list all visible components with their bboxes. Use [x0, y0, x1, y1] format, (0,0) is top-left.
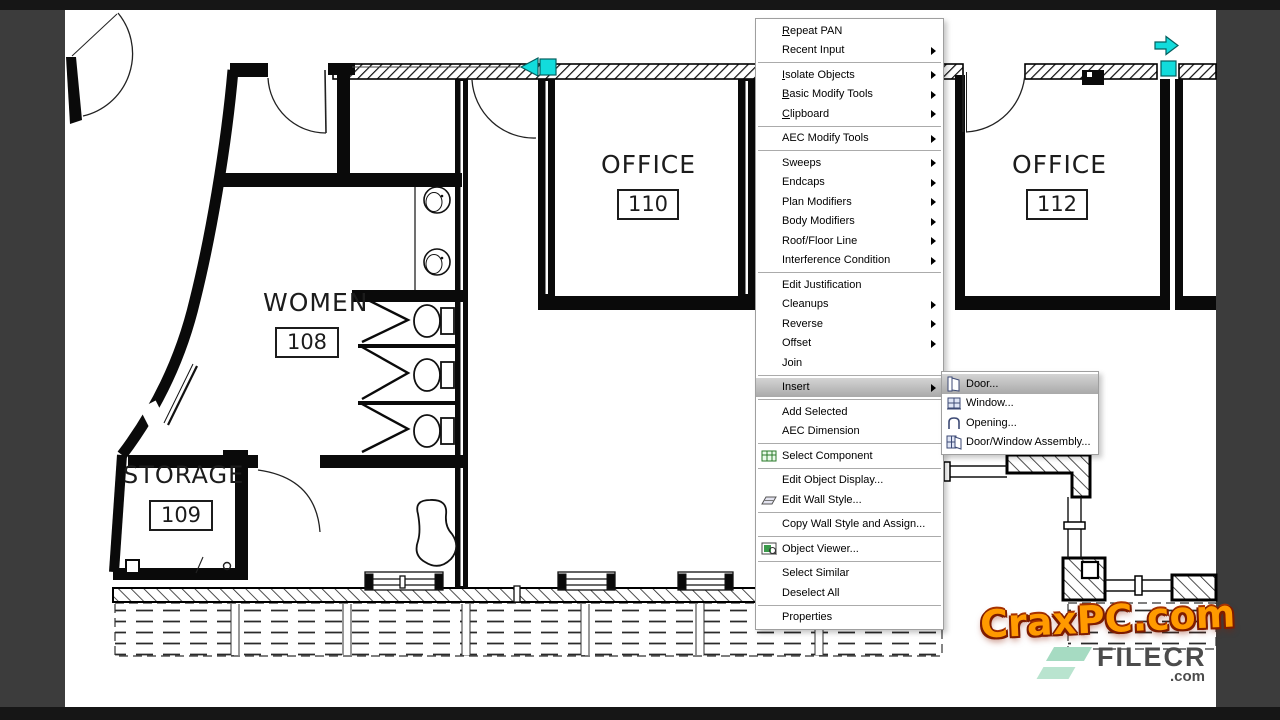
submenu-arrow-icon [931, 91, 936, 99]
menu-item-edit-justification[interactable]: Edit Justification [756, 275, 943, 295]
submenu-item-window[interactable]: Window... [942, 394, 1098, 414]
filecr-logo-bar [1046, 647, 1092, 661]
menu-item-copy-wall-style-and-assign[interactable]: Copy Wall Style and Assign... [756, 515, 943, 535]
context-menu: Repeat PAN Recent Input Isolate Objects … [755, 18, 944, 630]
menu-item-recent-input[interactable]: Recent Input [756, 41, 943, 61]
submenu-arrow-icon [931, 237, 936, 245]
menu-separator [758, 272, 941, 273]
room-number-108: 108 [275, 327, 339, 358]
menu-separator [758, 150, 941, 151]
door-icon [946, 376, 962, 392]
sink [424, 187, 450, 213]
object-viewer-icon [761, 541, 777, 557]
menu-item-sweeps[interactable]: Sweeps [756, 153, 943, 173]
submenu-arrow-icon [931, 301, 936, 309]
submenu-arrow-icon [931, 340, 936, 348]
door-window-assembly-icon [946, 434, 962, 450]
menu-item-select-component[interactable]: Select Component [756, 446, 943, 466]
menu-separator [758, 536, 941, 537]
menu-separator [758, 399, 941, 400]
room-number-109: 109 [149, 500, 213, 531]
submenu-arrow-icon [931, 384, 936, 392]
opening-icon [946, 415, 962, 431]
submenu-item-door-window-assembly[interactable]: Door/Window Assembly... [942, 433, 1098, 453]
menu-item-interference-condition[interactable]: Interference Condition [756, 251, 943, 271]
submenu-arrow-icon [931, 179, 936, 187]
menu-separator [758, 605, 941, 606]
menu-separator [758, 375, 941, 376]
menu-item-add-selected[interactable]: Add Selected [756, 402, 943, 422]
menu-item-isolate-objects[interactable]: Isolate Objects [756, 65, 943, 85]
menu-item-deselect-all[interactable]: Deselect All [756, 583, 943, 603]
menu-item-repeat-pan[interactable]: Repeat PAN [756, 21, 943, 41]
room-label-office-112: OFFICE [1012, 150, 1107, 179]
room-number-112: 112 [1026, 189, 1088, 220]
submenu-arrow-icon [931, 257, 936, 265]
menu-item-plan-modifiers[interactable]: Plan Modifiers [756, 192, 943, 212]
room-label-storage: STORAGE [123, 461, 244, 489]
wall-grip[interactable] [1161, 61, 1176, 76]
menu-item-select-similar[interactable]: Select Similar [756, 564, 943, 584]
menu-separator [758, 443, 941, 444]
wall-grip[interactable] [540, 59, 556, 75]
submenu-arrow-icon [931, 320, 936, 328]
menu-item-endcaps[interactable]: Endcaps [756, 173, 943, 193]
menu-item-aec-dimension[interactable]: AEC Dimension [756, 422, 943, 442]
menu-item-reverse[interactable]: Reverse [756, 314, 943, 334]
submenu-arrow-icon [931, 198, 936, 206]
sink [424, 249, 450, 275]
menu-item-aec-modify-tools[interactable]: AEC Modify Tools [756, 129, 943, 149]
room-label-office-110: OFFICE [601, 150, 696, 179]
menu-separator [758, 512, 941, 513]
menu-item-offset[interactable]: Offset [756, 334, 943, 354]
menu-separator [758, 62, 941, 63]
menu-item-join[interactable]: Join [756, 353, 943, 373]
submenu-arrow-icon [931, 110, 936, 118]
room-label-women: WOMEN [263, 288, 368, 317]
select-component-icon [761, 448, 777, 464]
submenu-arrow-icon [931, 218, 936, 226]
menu-item-body-modifiers[interactable]: Body Modifiers [756, 212, 943, 232]
submenu-item-opening[interactable]: Opening... [942, 413, 1098, 433]
menu-item-cleanups[interactable]: Cleanups [756, 295, 943, 315]
menu-item-edit-object-display[interactable]: Edit Object Display... [756, 471, 943, 491]
window-icon [946, 395, 962, 411]
room-number-110: 110 [617, 189, 679, 220]
menu-item-roof-floor-line[interactable]: Roof/Floor Line [756, 231, 943, 251]
wall-style-icon [761, 492, 777, 508]
submenu-arrow-icon [931, 71, 936, 79]
submenu-arrow-icon [931, 135, 936, 143]
menu-item-insert[interactable]: Insert [756, 378, 943, 398]
menu-item-object-viewer[interactable]: Object Viewer... [756, 539, 943, 559]
menu-item-properties[interactable]: Properties [756, 608, 943, 628]
submenu-arrow-icon [931, 47, 936, 55]
submenu-arrow-icon [931, 159, 936, 167]
menu-item-edit-wall-style[interactable]: Edit Wall Style... [756, 490, 943, 510]
filecr-tld: .com [1170, 668, 1205, 685]
submenu-item-door[interactable]: Door... [942, 374, 1098, 394]
insert-submenu: Door... Window... Opening... Door/Window… [941, 371, 1099, 455]
menu-item-clipboard[interactable]: Clipboard [756, 104, 943, 124]
menu-separator [758, 126, 941, 127]
menu-separator [758, 468, 941, 469]
menu-item-basic-modify-tools[interactable]: Basic Modify Tools [756, 85, 943, 105]
menu-separator [758, 561, 941, 562]
